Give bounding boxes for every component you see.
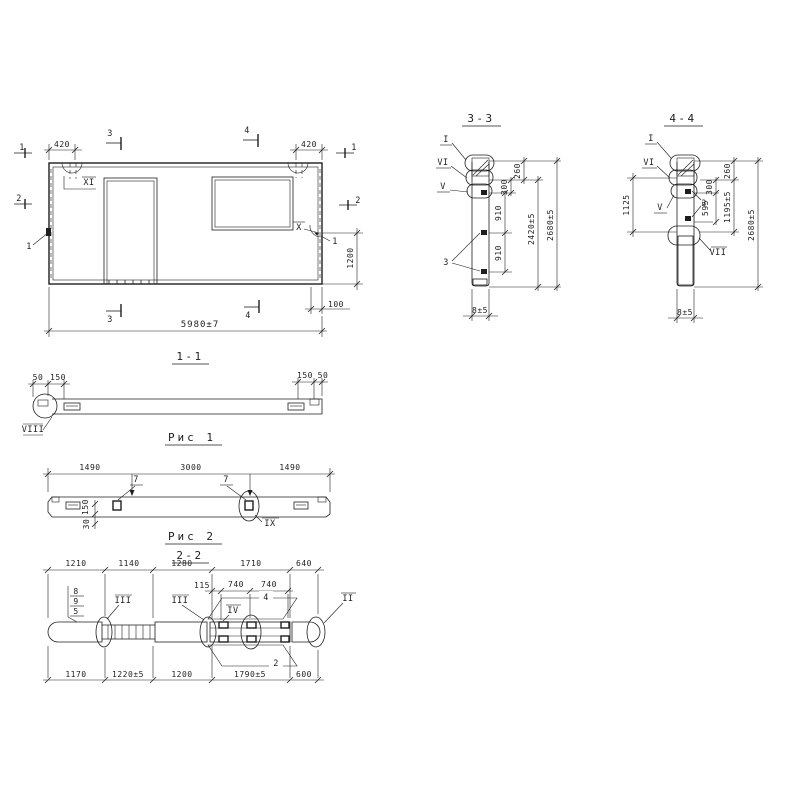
- label-VI: VI: [437, 158, 448, 168]
- detail-label-x: X: [296, 223, 302, 233]
- window-opening: [212, 177, 293, 230]
- mark-2-right: 2: [355, 196, 361, 206]
- mark-4-top: 4: [244, 126, 250, 136]
- dim-50-right: 50: [318, 371, 329, 380]
- section-3-3-title: 3-3: [467, 112, 494, 125]
- embedded-plate: [294, 502, 308, 509]
- callout-capsule: [668, 226, 700, 245]
- dim-420-right: 420: [290, 140, 328, 160]
- elevation-view: XI X 1 1 3 4 3 4 1 1 2 2: [14, 126, 363, 337]
- dim-300: 300: [500, 179, 509, 195]
- label-I-44: I: [648, 134, 654, 144]
- dim-3000: 3000: [180, 463, 201, 472]
- dim-1200: 1200: [322, 228, 363, 290]
- mark-3-bottom: 3: [107, 315, 113, 325]
- dim-910-a: 910: [494, 205, 503, 221]
- anchor-item-7: [245, 501, 253, 510]
- fig2-bar-outline: [48, 497, 330, 517]
- dim-600: 600: [296, 670, 312, 679]
- column-outline: [472, 162, 489, 286]
- dim-1790: 1790±5: [234, 670, 266, 679]
- dim-100: 100: [305, 287, 350, 314]
- dim-260: 260: [513, 163, 522, 179]
- dim-thickness-33: 8±5: [472, 306, 488, 315]
- dim-115: 115: [194, 581, 210, 590]
- dim-total-width: 5980±7: [44, 287, 327, 337]
- edge-plate-mark: [46, 228, 51, 236]
- dim-420-left: 420: [44, 140, 82, 160]
- callout-capsule: [670, 155, 700, 171]
- callout-capsule: [200, 617, 216, 647]
- pos-4-label: 4: [263, 593, 269, 603]
- pos-1-left: 1: [26, 242, 32, 252]
- pos-7-left: 7: [133, 475, 139, 485]
- anchor-item-7: [113, 501, 121, 510]
- label-V-44: V: [657, 203, 663, 213]
- callout-capsule: [96, 617, 112, 647]
- pos-9: 9: [73, 597, 78, 606]
- label-I: I: [443, 135, 449, 145]
- figure-2-caption: Рис 2: [168, 530, 216, 543]
- label-II: II: [342, 594, 353, 604]
- dim-740-a: 740: [228, 580, 244, 589]
- pos-7-right: 7: [223, 475, 229, 485]
- dim-50-left: 50: [33, 373, 44, 382]
- label-VIII: VIII: [22, 425, 44, 435]
- dim-150-mini: 150: [81, 499, 90, 515]
- dim-1140: 1140: [118, 559, 139, 568]
- dim-150-left: 150: [50, 373, 66, 382]
- callout-ellipse: [239, 491, 259, 521]
- panel-drawing-svg: XI X 1 1 3 4 3 4 1 1 2 2: [0, 0, 800, 800]
- dim-1220: 1220±5: [112, 670, 144, 679]
- label-V: V: [440, 182, 446, 192]
- mark-2-left: 2: [16, 194, 22, 204]
- dim-1280: 1280: [171, 559, 192, 568]
- dim-1125: 1125: [622, 194, 631, 215]
- dim-150-right: 150: [297, 371, 313, 380]
- door-opening: [104, 178, 157, 284]
- dim-1490-left: 1490: [79, 463, 100, 472]
- label-III-a: III: [115, 596, 132, 606]
- hatched-lower-part: [678, 236, 693, 285]
- dim-910-b: 910: [494, 245, 503, 261]
- label-IX: IX: [264, 519, 276, 529]
- dim-total-text: 5980±7: [181, 320, 220, 330]
- dim-1200-text: 1200: [346, 247, 355, 268]
- label-III-b: III: [172, 596, 189, 606]
- label-VI-44: VI: [643, 158, 654, 168]
- dim-100-text: 100: [328, 300, 344, 309]
- mark-4-bottom: 4: [245, 311, 251, 321]
- section-1-1: 1-1 50 150 150 50 VIII Рис 1: [22, 350, 329, 445]
- callout-capsule: [467, 184, 492, 198]
- callout-capsule: [669, 170, 697, 185]
- column-outline-44: [677, 162, 694, 286]
- section-4-4: 4-4 I VI V 3 VII 1125: [622, 112, 763, 323]
- callout-capsule: [307, 617, 325, 647]
- mark-3-top: 3: [107, 129, 113, 139]
- dim-thickness-44: 8±5: [677, 308, 693, 317]
- bar-outline: [52, 399, 322, 414]
- section-marks: 3 4 3 4 1 1 2 2: [14, 126, 361, 325]
- dim-2680-44: 2680±5: [747, 209, 756, 241]
- dim-740-b: 740: [261, 580, 277, 589]
- blueprint-sheet: XI X 1 1 3 4 3 4 1 1 2 2: [0, 0, 800, 800]
- lifting-loop-right: [288, 163, 308, 178]
- pos-2-label: 2: [273, 659, 279, 669]
- dim-1710: 1710: [240, 559, 261, 568]
- dim-640: 640: [296, 559, 312, 568]
- dim-1195: 1195±5: [723, 191, 732, 223]
- embedded-plate: [64, 403, 80, 410]
- section-3-3: 3-3 I VI V 3 260 300: [436, 112, 561, 321]
- mark-1-right: 1: [351, 143, 357, 153]
- label-IV: IV: [227, 606, 238, 616]
- dim-30-mini: 30: [82, 519, 91, 530]
- bar-2-2: [48, 615, 325, 649]
- callout-capsule: [671, 184, 697, 198]
- embedded-plate: [66, 502, 80, 509]
- dim-2680: 2680±5: [546, 209, 555, 241]
- figure-1-caption: Рис 1: [168, 431, 216, 444]
- section-1-1-title: 1-1: [176, 350, 203, 363]
- dim-420-right-text: 420: [301, 140, 317, 149]
- mark-1-left: 1: [19, 143, 25, 153]
- pos-8: 8: [73, 587, 78, 596]
- pos-1-right: 1: [332, 237, 338, 247]
- section-4-4-title: 4-4: [669, 112, 696, 125]
- dim-595: 595: [701, 200, 710, 216]
- pos-5: 5: [73, 607, 78, 616]
- label-VII: VII: [710, 248, 727, 258]
- dim-1200-b: 1200: [171, 670, 192, 679]
- dim-1210: 1210: [65, 559, 86, 568]
- embedded-plate: [288, 403, 304, 410]
- dim-1490-right: 1490: [279, 463, 300, 472]
- dim-1170: 1170: [65, 670, 86, 679]
- pos-3-label: 3: [443, 258, 449, 268]
- dim-2420: 2420±5: [527, 213, 536, 245]
- figure-2-view: 1490 3000 1490 7 7 150 30 IX Рис 2 2-2: [43, 463, 335, 563]
- dim-420-left-text: 420: [54, 140, 70, 149]
- detail-label-xi: XI: [83, 178, 94, 188]
- dim-300-44: 300: [705, 179, 714, 195]
- callout-capsule: [241, 615, 261, 649]
- section-2-2: 1210 1140 1280 1710 640 115 740 740 8 9 …: [43, 559, 356, 683]
- dim-260-44: 260: [723, 163, 732, 179]
